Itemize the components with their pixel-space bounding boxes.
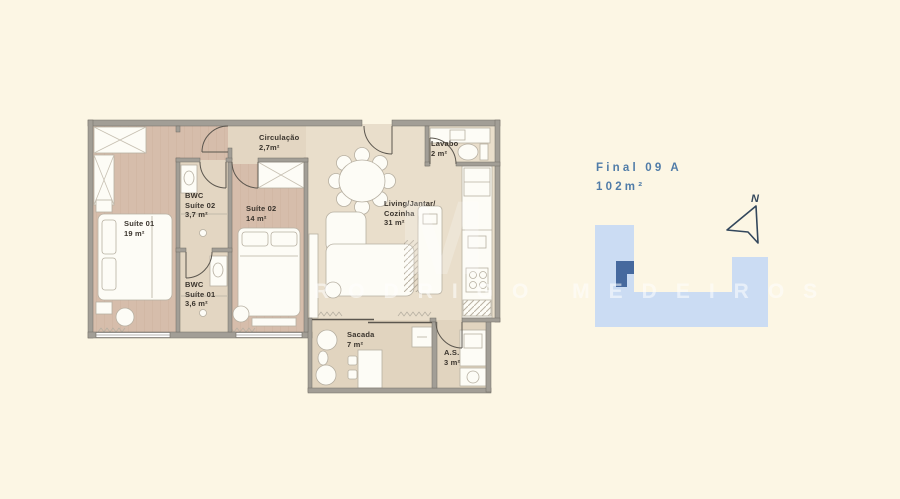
room-name: Suíte 01 bbox=[124, 219, 154, 229]
room-name: Lavabo bbox=[431, 139, 458, 149]
room-name: BWC bbox=[185, 191, 215, 201]
room-area: 2 m² bbox=[431, 149, 458, 159]
unit-title: Final 09 A bbox=[596, 162, 682, 174]
room-area: 14 m² bbox=[246, 214, 276, 224]
floorplan-page: Suíte 01 19 m² BWC Suíte 02 3,7 m² Suíte… bbox=[0, 0, 900, 499]
room-label-lavabo: Lavabo 2 m² bbox=[431, 139, 458, 158]
room-label-bwc-suite01: BWC Suíte 01 3,6 m² bbox=[185, 280, 215, 309]
unit-area: 102m² bbox=[596, 181, 645, 193]
room-label-suite01: Suíte 01 19 m² bbox=[124, 219, 154, 238]
room-name: Sacada bbox=[347, 330, 374, 340]
room-label-suite02: Suíte 02 14 m² bbox=[246, 204, 276, 223]
north-arrow-icon bbox=[727, 206, 758, 243]
room-area: 3,6 m² bbox=[185, 299, 215, 309]
room-name: Circulação bbox=[259, 133, 299, 143]
room-name: A.S. bbox=[444, 348, 460, 358]
north-label: N bbox=[751, 193, 759, 205]
room-area: 19 m² bbox=[124, 229, 154, 239]
room-area: 7 m² bbox=[347, 340, 374, 350]
building-footprint bbox=[595, 225, 768, 327]
room-label-bwc-suite02: BWC Suíte 02 3,7 m² bbox=[185, 191, 215, 220]
room-area: 3,7 m² bbox=[185, 210, 215, 220]
watermark-text: RODRIGO MEDEIROS bbox=[314, 280, 874, 304]
watermark-monogram: M bbox=[398, 186, 485, 291]
room-label-as: A.S. 3 m² bbox=[444, 348, 460, 367]
room-name: Suíte 01 bbox=[185, 290, 215, 300]
room-label-circulacao: Circulação 2,7m² bbox=[259, 133, 299, 152]
room-name: Suíte 02 bbox=[185, 201, 215, 211]
room-name: Suíte 02 bbox=[246, 204, 276, 214]
room-name: BWC bbox=[185, 280, 215, 290]
room-area: 2,7m² bbox=[259, 143, 299, 153]
room-label-sacada: Sacada 7 m² bbox=[347, 330, 374, 349]
room-area: 3 m² bbox=[444, 358, 460, 368]
